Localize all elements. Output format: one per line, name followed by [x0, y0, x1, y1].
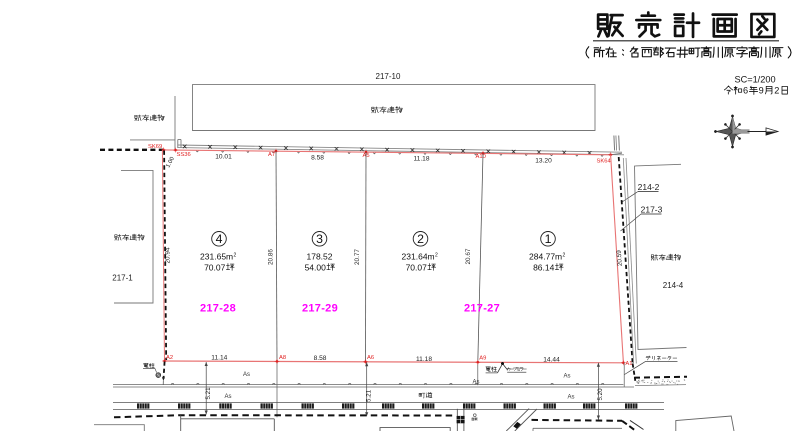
- svg-text:11.14: 11.14: [211, 355, 227, 362]
- svg-text:14.44: 14.44: [543, 356, 560, 363]
- svg-text:214-4: 214-4: [663, 281, 684, 290]
- svg-text:5.21: 5.21: [365, 389, 372, 402]
- svg-text:2: 2: [417, 232, 424, 246]
- svg-text:54.00: 54.00: [305, 263, 327, 273]
- svg-text:217-29: 217-29: [302, 303, 338, 315]
- svg-text:As: As: [567, 394, 574, 400]
- svg-text:20.86: 20.86: [267, 249, 274, 265]
- svg-text:8.58: 8.58: [311, 154, 324, 161]
- svg-text:217-10: 217-10: [376, 72, 401, 81]
- svg-text:3: 3: [316, 232, 323, 246]
- svg-text:5.20: 5.20: [597, 388, 604, 401]
- svg-text:70.07: 70.07: [204, 263, 226, 273]
- svg-text:70.07: 70.07: [406, 263, 428, 273]
- svg-text:217-28: 217-28: [200, 303, 236, 315]
- svg-text:4: 4: [216, 232, 223, 246]
- svg-text:A1: A1: [625, 361, 632, 367]
- svg-text:A8: A8: [279, 355, 286, 361]
- svg-text:20.77: 20.77: [354, 249, 361, 265]
- svg-text:13.20: 13.20: [535, 157, 552, 164]
- svg-text:20.94: 20.94: [165, 247, 172, 263]
- svg-text:231.65m: 231.65m: [200, 252, 233, 262]
- svg-text:11.18: 11.18: [416, 356, 432, 363]
- svg-text:217-27: 217-27: [464, 303, 500, 315]
- svg-text:214-2: 214-2: [638, 182, 660, 192]
- svg-text:SK69: SK69: [148, 144, 162, 150]
- svg-text:A6: A6: [367, 355, 374, 361]
- svg-text:217-3: 217-3: [641, 205, 663, 215]
- svg-text:As: As: [224, 394, 231, 400]
- svg-text:SS36: SS36: [177, 152, 191, 158]
- svg-text:11.18: 11.18: [413, 156, 429, 163]
- svg-text:2: 2: [234, 253, 237, 259]
- svg-text:SC=1/200: SC=1/200: [734, 75, 775, 85]
- svg-text:A10: A10: [476, 154, 486, 160]
- svg-text:20.67: 20.67: [465, 248, 472, 264]
- svg-text:86.14: 86.14: [533, 263, 555, 273]
- svg-text:2: 2: [435, 253, 438, 259]
- svg-text:20.59: 20.59: [616, 249, 624, 266]
- svg-text:As: As: [472, 380, 479, 386]
- svg-text:231.64m: 231.64m: [402, 252, 435, 262]
- svg-text:8.58: 8.58: [314, 355, 327, 362]
- svg-text:284.77m: 284.77m: [529, 252, 562, 262]
- svg-text:A9: A9: [479, 355, 486, 361]
- svg-text:As: As: [563, 373, 570, 379]
- svg-text:9: 9: [759, 86, 764, 96]
- svg-text:A2: A2: [166, 355, 173, 361]
- svg-text:As: As: [243, 372, 250, 378]
- svg-text:2: 2: [563, 253, 566, 259]
- svg-text:10.01: 10.01: [215, 153, 232, 160]
- svg-text:A7: A7: [268, 152, 275, 158]
- svg-text:SK64: SK64: [597, 158, 612, 164]
- svg-text:2: 2: [774, 86, 779, 96]
- svg-text:1: 1: [545, 232, 552, 246]
- svg-text:217-1: 217-1: [112, 274, 133, 283]
- svg-text:1.00: 1.00: [165, 156, 176, 169]
- svg-text:6: 6: [743, 86, 748, 96]
- svg-text:5.21: 5.21: [205, 387, 212, 400]
- svg-text:178.52: 178.52: [307, 252, 333, 262]
